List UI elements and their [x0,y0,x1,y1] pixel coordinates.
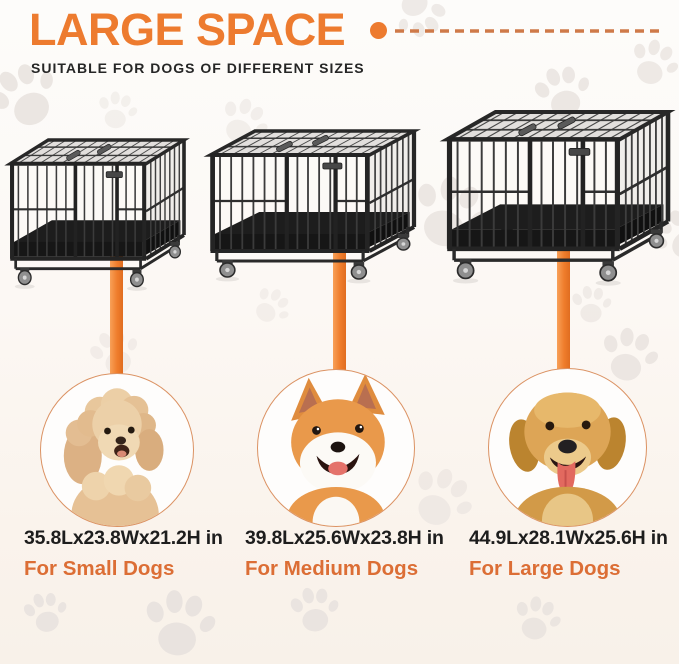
dimensions-small: 35.8Lx23.8Wx21.2H in [24,527,223,550]
dimensions-medium: 39.8Lx25.6Wx23.8H in [245,527,444,550]
product-infographic: LARGE SPACE SUITABLE FOR DOGS OF DIFFERE… [0,0,679,664]
page-title: LARGE SPACE [29,6,345,53]
shiba-inu-illustration [258,370,414,526]
paw-print-icon [504,584,569,649]
dog-crate-small [10,140,184,291]
poodle-illustration [41,374,193,526]
paw-print-icon [15,581,74,640]
size-block-large: 44.9Lx28.1Wx25.6H in For Large Dogs [469,527,668,581]
label-small: For Small Dogs [24,557,223,581]
paw-print-icon [134,576,224,664]
size-block-medium: 39.8Lx25.6Wx23.8H in For Medium Dogs [245,527,444,581]
dog-crate-medium [210,131,414,283]
dog-photo-medium [257,369,415,527]
dog-photo-small [40,373,194,527]
label-medium: For Medium Dogs [245,557,444,581]
dot-icon [370,22,387,39]
dimensions-large: 44.9Lx28.1Wx25.6H in [469,527,668,550]
paw-print-icon [283,577,345,639]
page-subtitle: SUITABLE FOR DOGS OF DIFFERENT SIZES [31,60,365,76]
size-block-small: 35.8Lx23.8Wx21.2H in For Small Dogs [24,527,223,581]
dog-crate-large [447,112,668,286]
dog-photo-large [488,368,647,527]
golden-retriever-illustration [489,369,646,526]
label-large: For Large Dogs [469,557,668,581]
dashed-line-icon [393,27,665,35]
